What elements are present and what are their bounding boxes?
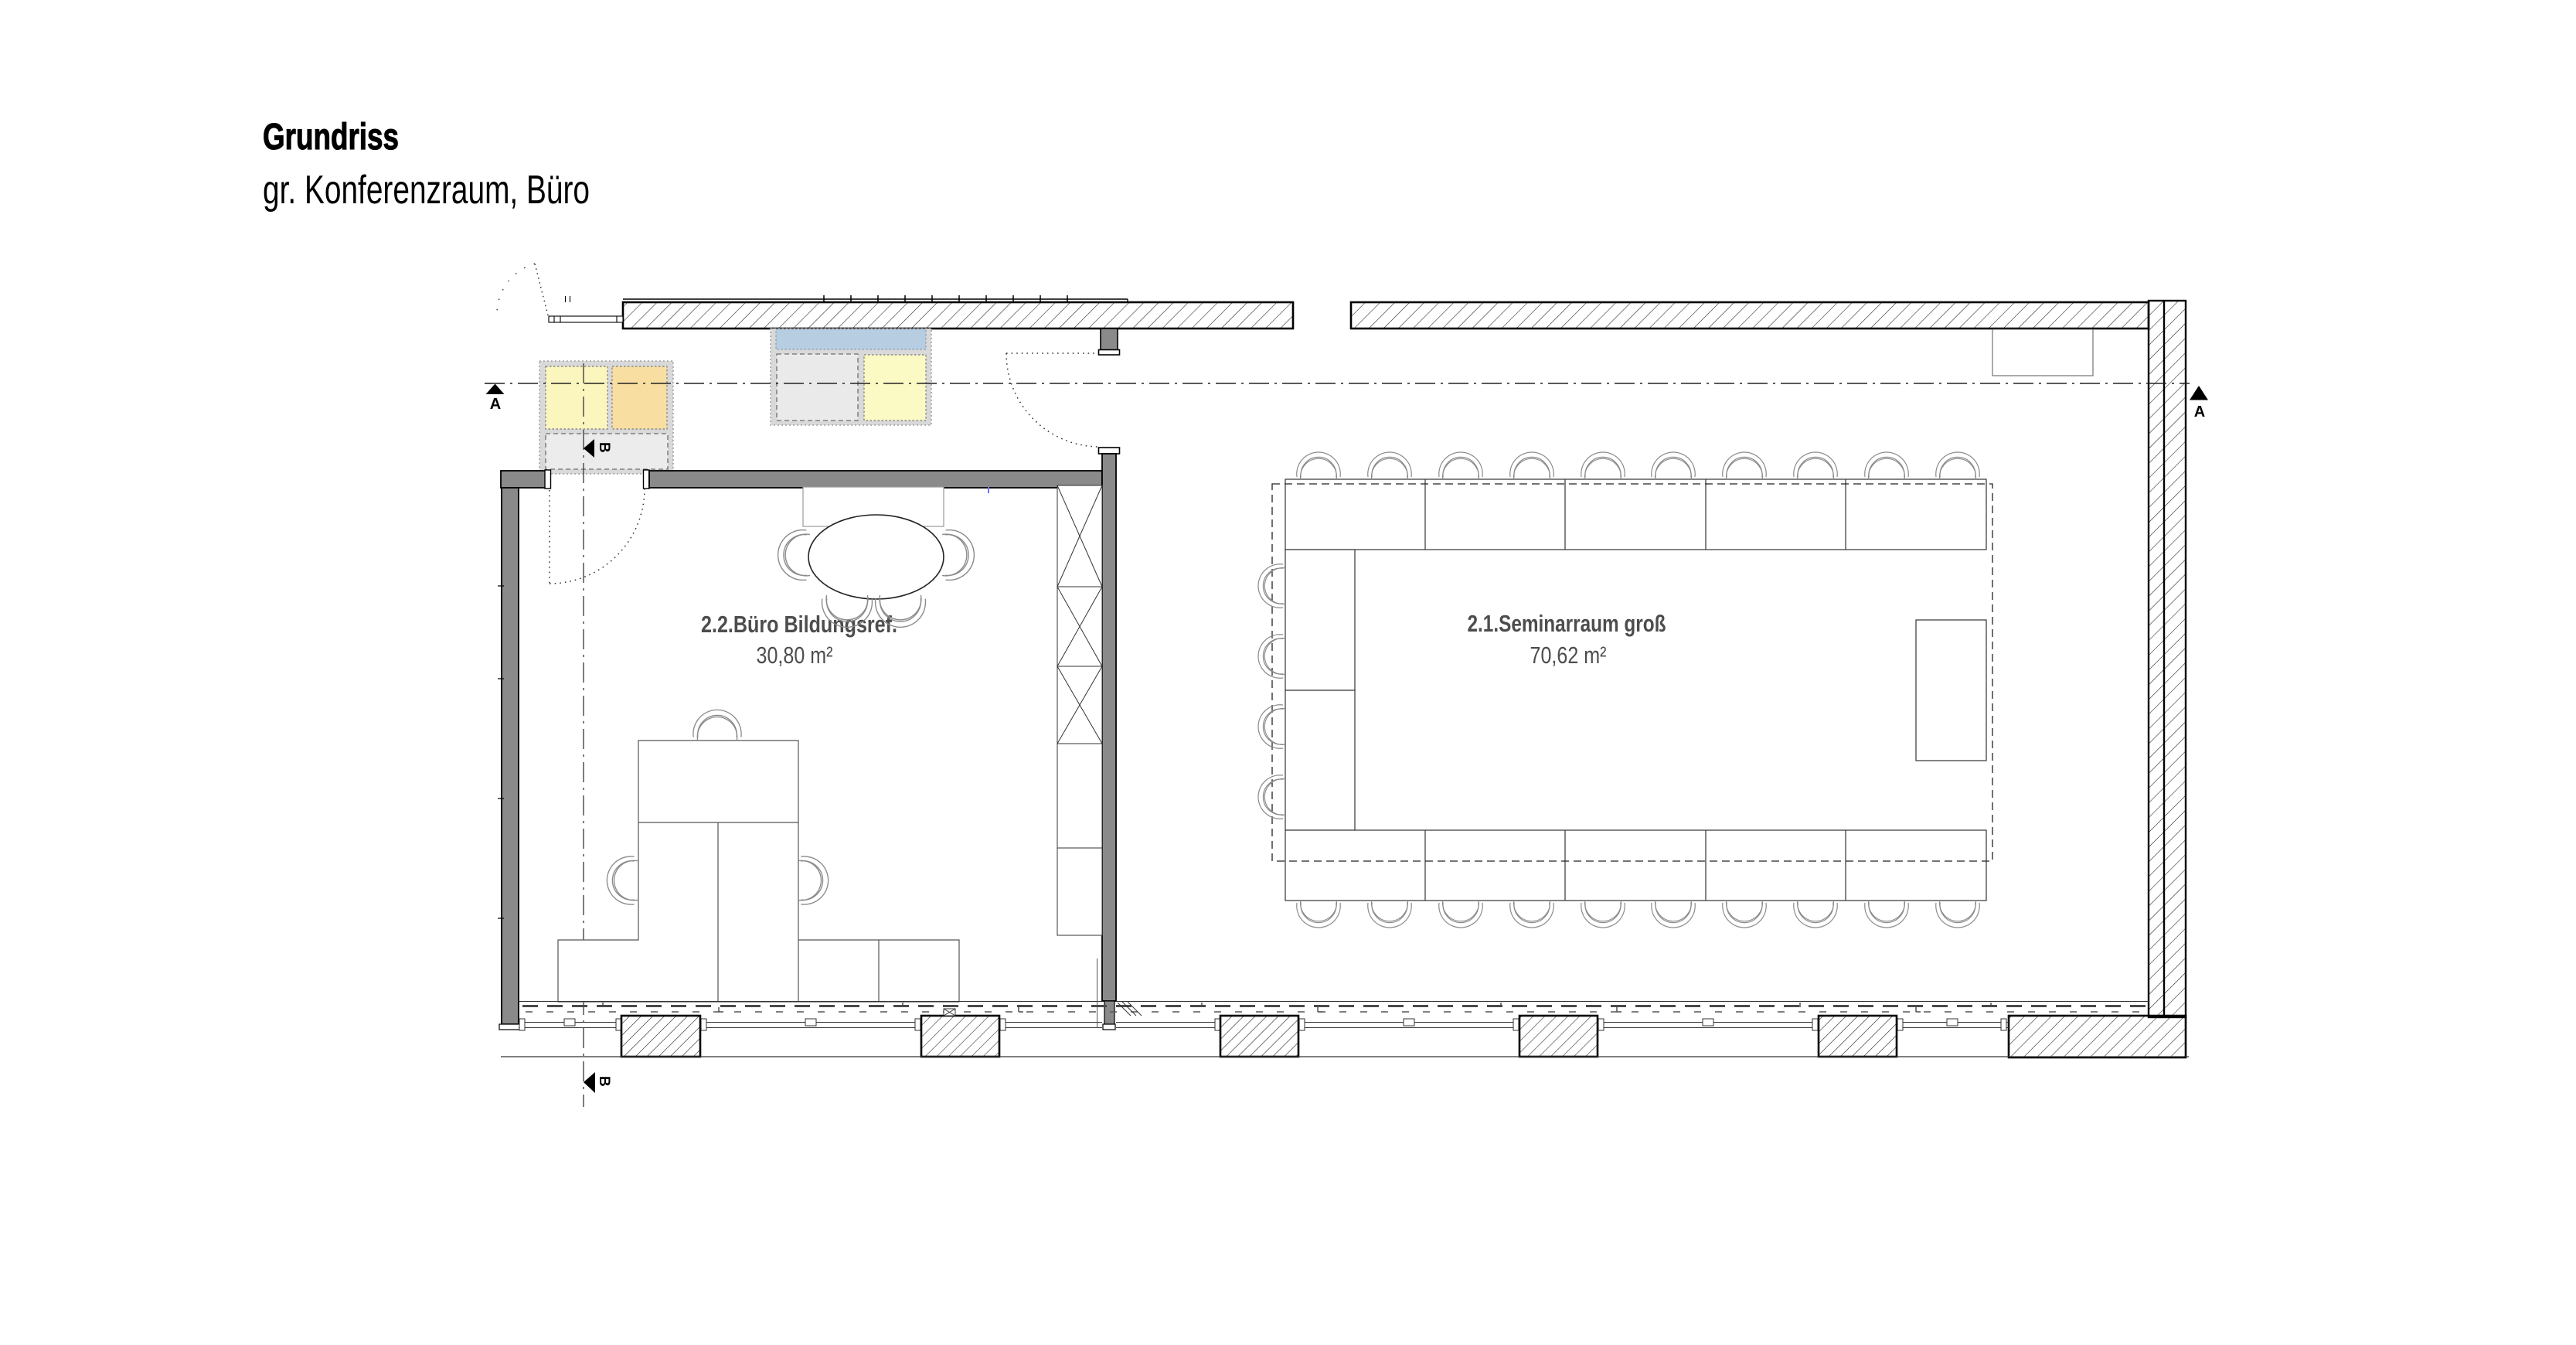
svg-text:30,80 m²: 30,80 m² [757, 642, 833, 669]
svg-text:70,62 m²: 70,62 m² [1530, 642, 1607, 669]
svg-text:B: B [596, 442, 612, 453]
svg-text:2.1.Seminarraum groß: 2.1.Seminarraum groß [1468, 610, 1666, 637]
svg-text:2.2.Büro Bildungsref.: 2.2.Büro Bildungsref. [701, 611, 897, 638]
svg-text:B: B [596, 1076, 612, 1087]
svg-text:A: A [2194, 403, 2205, 421]
svg-text:gr. Konferenzraum, Büro: gr. Konferenzraum, Büro [263, 168, 590, 213]
svg-text:A: A [490, 396, 501, 413]
svg-text:Grundriss: Grundriss [263, 117, 399, 158]
